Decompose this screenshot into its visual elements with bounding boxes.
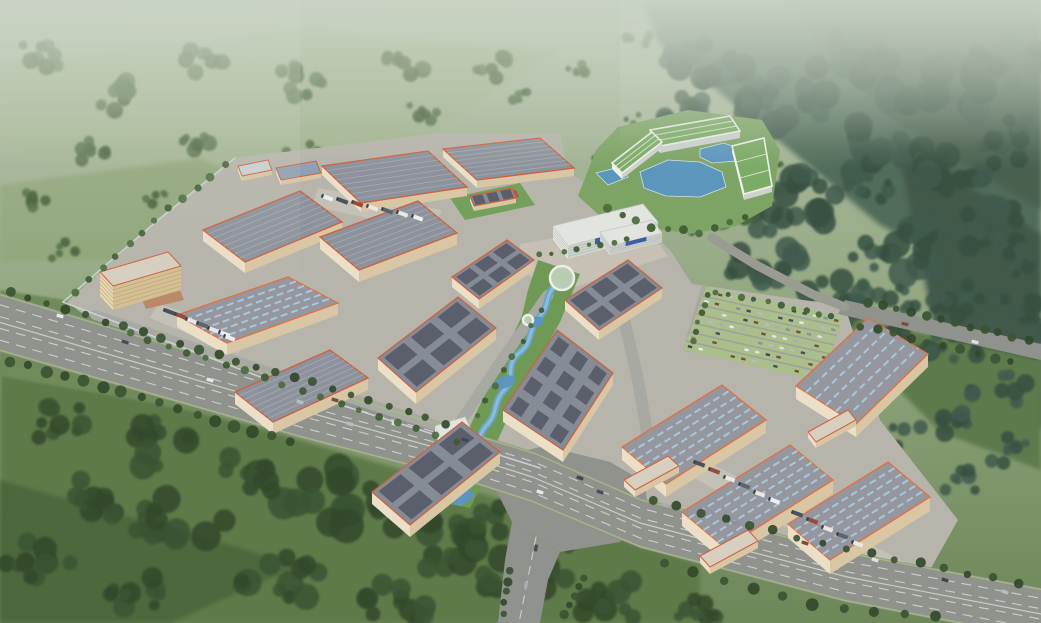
aerial-industrial-park-rendering xyxy=(0,0,1041,623)
rendering-canvas xyxy=(0,0,1041,623)
